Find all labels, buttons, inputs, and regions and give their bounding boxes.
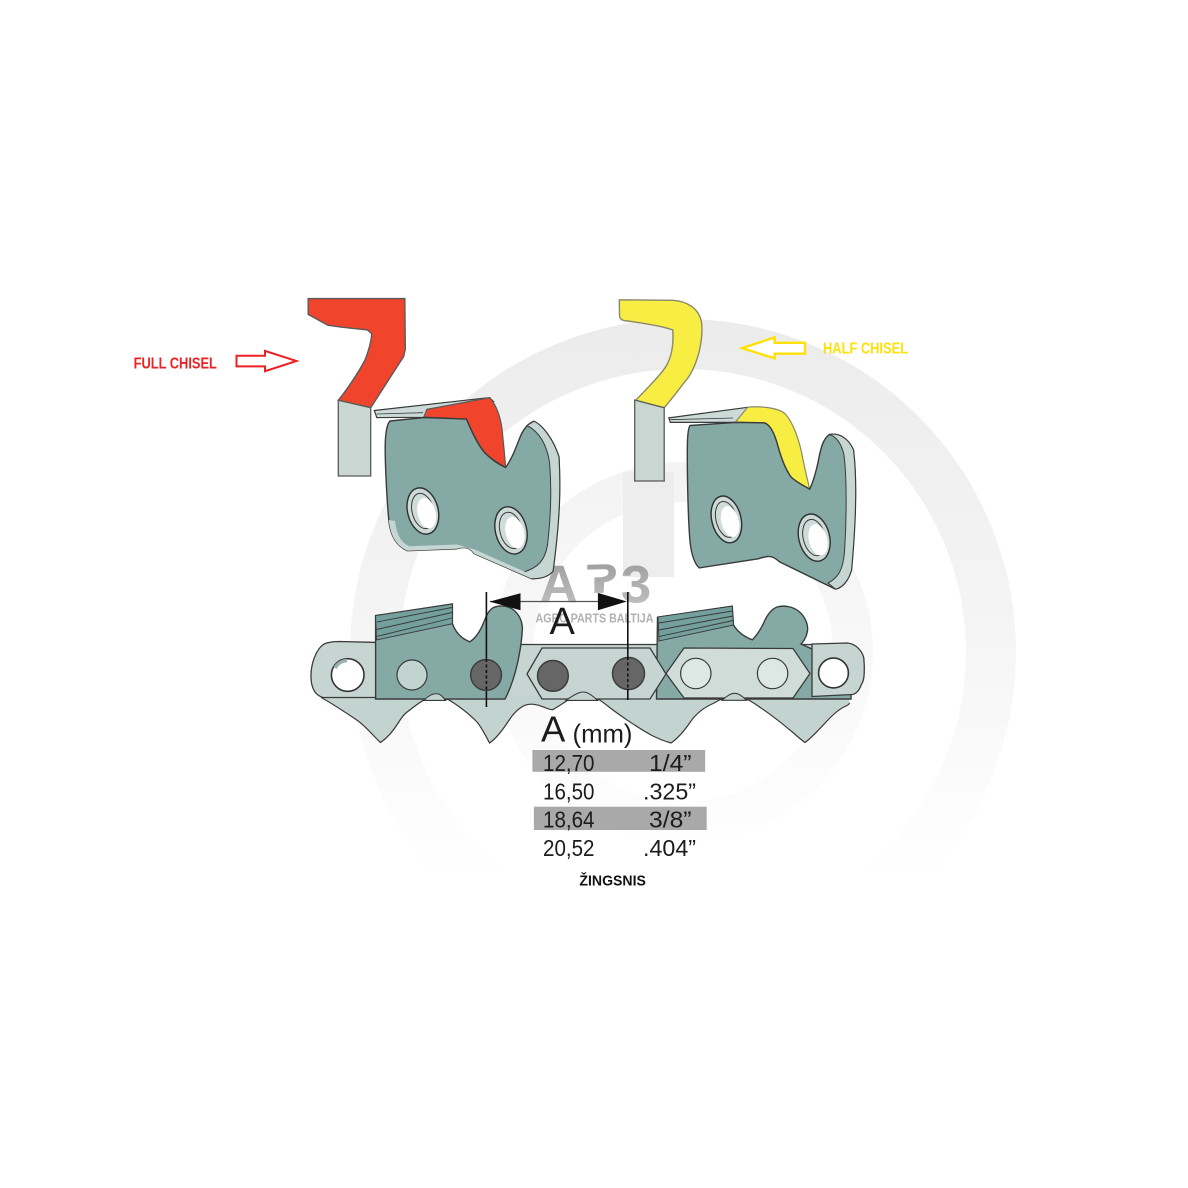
svg-text:ŽINGSNIS: ŽINGSNIS — [579, 872, 646, 890]
svg-text:A: A — [541, 708, 566, 749]
svg-text:1/4”: 1/4” — [649, 750, 692, 776]
svg-text:3/8”: 3/8” — [649, 807, 692, 833]
svg-text:.325”: .325” — [643, 778, 696, 804]
svg-text:(mm): (mm) — [573, 719, 633, 749]
svg-text:3: 3 — [621, 556, 652, 615]
svg-text:FULL CHISEL: FULL CHISEL — [134, 356, 217, 373]
svg-text:12,70: 12,70 — [543, 750, 595, 776]
svg-text:A: A — [550, 601, 576, 643]
svg-text:.404”: .404” — [643, 835, 696, 861]
svg-text:HALF CHISEL: HALF CHISEL — [823, 341, 908, 358]
svg-text:20,52: 20,52 — [543, 835, 595, 861]
svg-text:16,50: 16,50 — [543, 778, 595, 804]
svg-text:18,64: 18,64 — [543, 807, 595, 833]
